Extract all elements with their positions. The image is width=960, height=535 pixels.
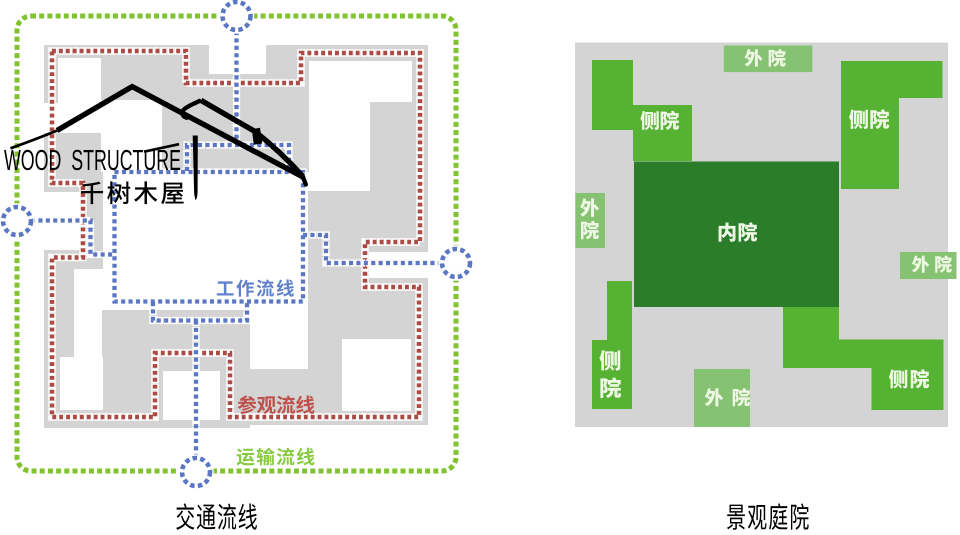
svg-text:WOOD STRUCTURE: WOOD STRUCTURE [4, 145, 181, 177]
